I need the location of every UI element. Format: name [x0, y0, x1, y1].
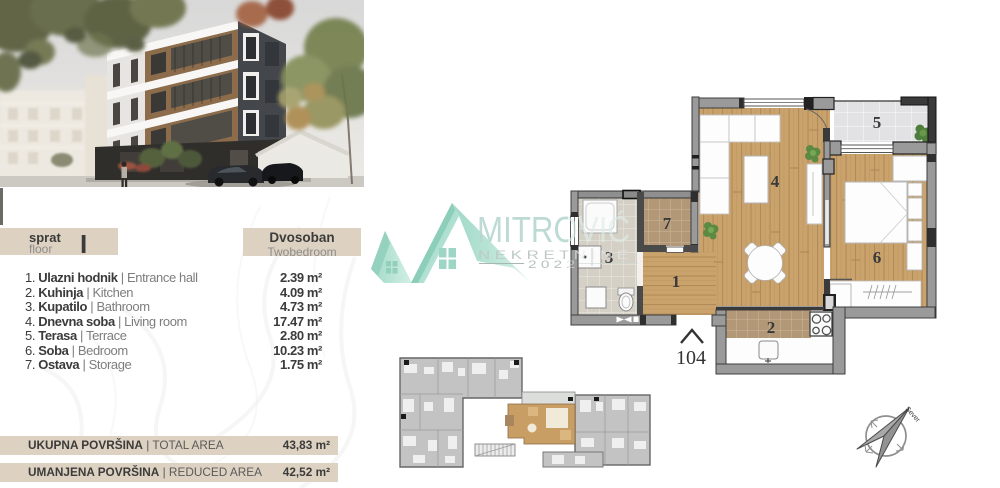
svg-text:2: 2: [767, 318, 776, 337]
svg-text:2 0 2 2: 2 0 2 2: [528, 259, 575, 271]
svg-text:5: 5: [873, 113, 882, 132]
svg-text:1: 1: [672, 272, 681, 291]
svg-text:7: 7: [663, 214, 672, 233]
svg-text:6: 6: [873, 248, 882, 267]
svg-text:104: 104: [676, 347, 706, 369]
svg-text:4: 4: [771, 172, 780, 191]
svg-text:Sever: Sever: [904, 406, 922, 425]
